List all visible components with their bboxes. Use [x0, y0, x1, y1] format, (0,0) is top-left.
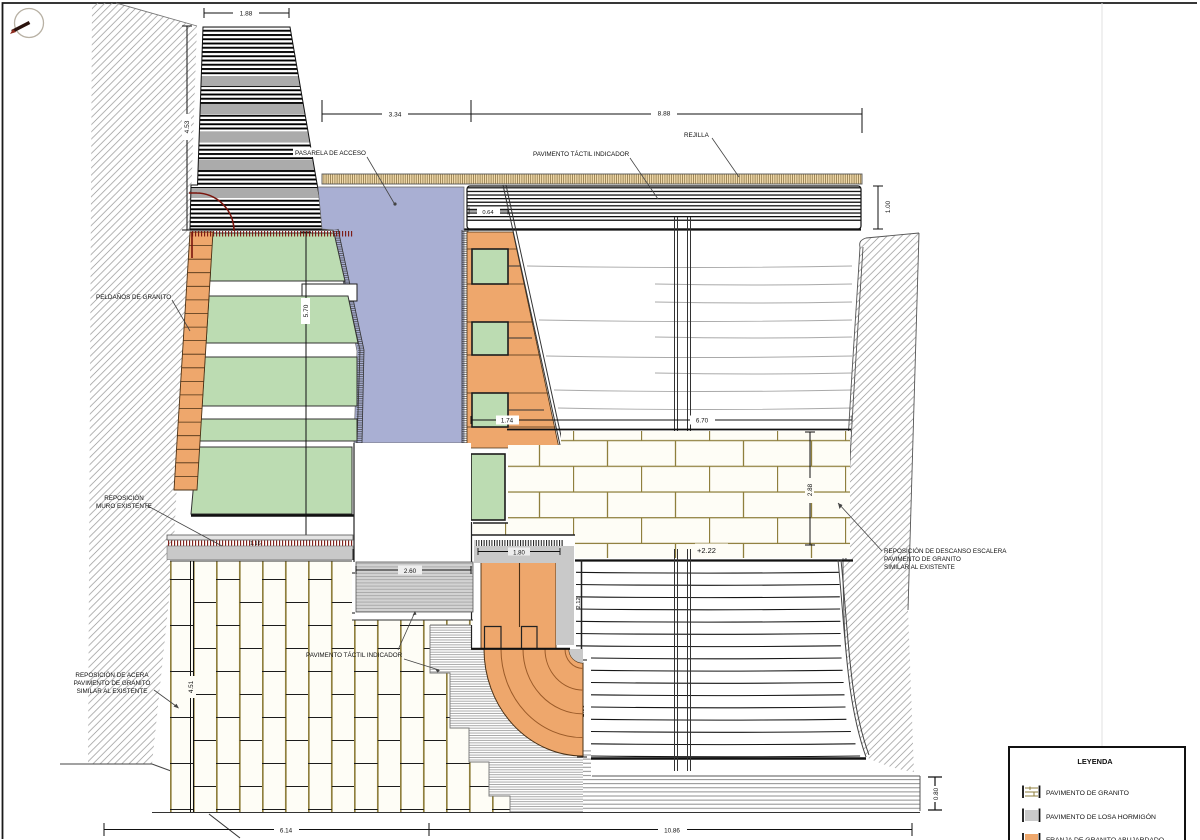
svg-text:8.88: 8.88 [658, 111, 671, 118]
svg-text:1.00: 1.00 [885, 200, 892, 213]
svg-text:1.80: 1.80 [513, 551, 525, 557]
svg-text:1.88: 1.88 [240, 11, 253, 18]
svg-text:PASARELA DE ACCESO: PASARELA DE ACCESO [295, 150, 366, 157]
svg-text:+2.22: +2.22 [697, 546, 716, 555]
svg-text:2.60: 2.60 [404, 568, 417, 575]
svg-text:REJILLA: REJILLA [684, 132, 710, 139]
svg-text:PAVIMENTO TÁCTIL INDICADOR: PAVIMENTO TÁCTIL INDICADOR [306, 650, 403, 659]
svg-text:0.80: 0.80 [933, 787, 940, 800]
svg-text:PAVIMENTO DE GRANITO: PAVIMENTO DE GRANITO [884, 556, 961, 563]
svg-text:6.70: 6.70 [696, 418, 709, 425]
svg-text:REPOSICIÓN DE DESCANSO ESCALER: REPOSICIÓN DE DESCANSO ESCALERA [884, 546, 1007, 555]
svg-text:REPOSICIÓN DE ACERA: REPOSICIÓN DE ACERA [75, 670, 149, 679]
svg-text:2.88: 2.88 [807, 483, 814, 496]
svg-text:MURO EXISTENTE: MURO EXISTENTE [96, 503, 152, 510]
svg-text:3.34: 3.34 [389, 112, 402, 119]
svg-text:PAVIMENTO DE GRANITO: PAVIMENTO DE GRANITO [74, 680, 151, 687]
svg-text:2.12: 2.12 [576, 597, 582, 608]
svg-text:1.74: 1.74 [501, 418, 514, 425]
svg-text:PAVIMENTO DE GRANITO: PAVIMENTO DE GRANITO [1046, 790, 1129, 797]
svg-text:PAVIMENTO TÁCTIL INDICADOR: PAVIMENTO TÁCTIL INDICADOR [533, 149, 630, 158]
svg-text:PAVIMENTO DE LOSA HORMIGÓN: PAVIMENTO DE LOSA HORMIGÓN [1046, 812, 1156, 821]
svg-text:SIMILAR AL EXISTENTE: SIMILAR AL EXISTENTE [77, 688, 148, 695]
svg-text:REPOSICIÓN: REPOSICIÓN [104, 493, 144, 502]
svg-text:5.70: 5.70 [303, 304, 310, 317]
svg-text:6.14: 6.14 [280, 828, 293, 835]
svg-text:PELDAÑOS DE GRANITO: PELDAÑOS DE GRANITO [96, 292, 171, 301]
svg-text:LEYENDA: LEYENDA [1077, 757, 1113, 766]
svg-text:10.86: 10.86 [664, 828, 680, 835]
svg-text:0.64: 0.64 [482, 210, 494, 216]
svg-text:4.53: 4.53 [184, 120, 191, 133]
svg-text:SIMILAR AL EXISTENTE: SIMILAR AL EXISTENTE [884, 564, 955, 571]
svg-text:4.51: 4.51 [188, 680, 195, 693]
